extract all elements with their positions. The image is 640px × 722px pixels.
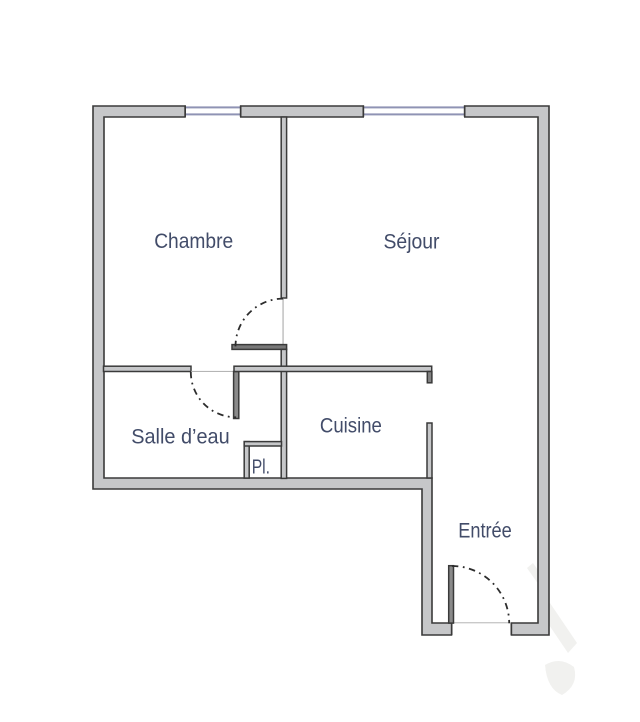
svg-text:Chambre: Chambre xyxy=(154,230,233,253)
svg-text:Salle d’eau: Salle d’eau xyxy=(131,426,230,449)
svg-text:Cuisine: Cuisine xyxy=(320,414,382,437)
svg-text:Pl.: Pl. xyxy=(252,456,270,478)
svg-text:Entrée: Entrée xyxy=(458,519,512,542)
svg-text:Séjour: Séjour xyxy=(384,230,440,253)
